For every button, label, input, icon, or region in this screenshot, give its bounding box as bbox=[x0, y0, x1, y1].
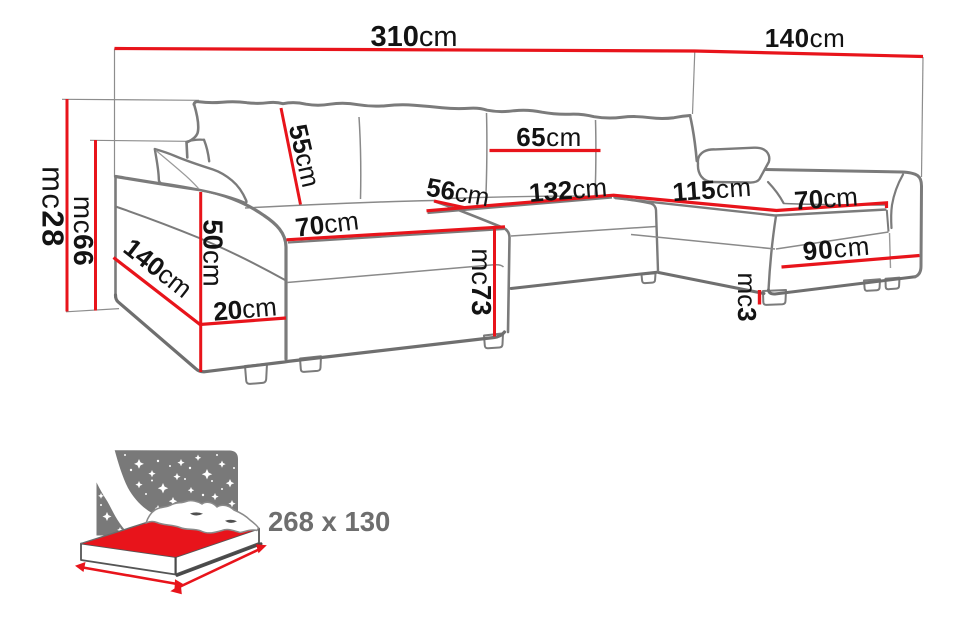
svg-text:115cm: 115cm bbox=[671, 172, 752, 207]
svg-text:55cm: 55cm bbox=[283, 121, 327, 190]
svg-text:65cm: 65cm bbox=[516, 122, 582, 152]
svg-text:310cm: 310cm bbox=[370, 21, 457, 53]
svg-text:268 x 130: 268 x 130 bbox=[268, 506, 390, 537]
svg-text:mc73: mc73 bbox=[466, 248, 497, 315]
svg-text:20cm: 20cm bbox=[212, 291, 278, 326]
svg-text:mc28: mc28 bbox=[36, 166, 71, 248]
svg-text:56cm: 56cm bbox=[424, 172, 492, 213]
svg-text:132cm: 132cm bbox=[528, 172, 608, 208]
svg-text:mc3: mc3 bbox=[732, 272, 762, 321]
svg-text:mc66: mc66 bbox=[68, 196, 99, 266]
svg-text:140cm: 140cm bbox=[765, 23, 846, 53]
svg-text:50cm: 50cm bbox=[198, 219, 229, 286]
svg-text:90cm: 90cm bbox=[802, 231, 872, 267]
svg-text:70cm: 70cm bbox=[793, 181, 859, 215]
